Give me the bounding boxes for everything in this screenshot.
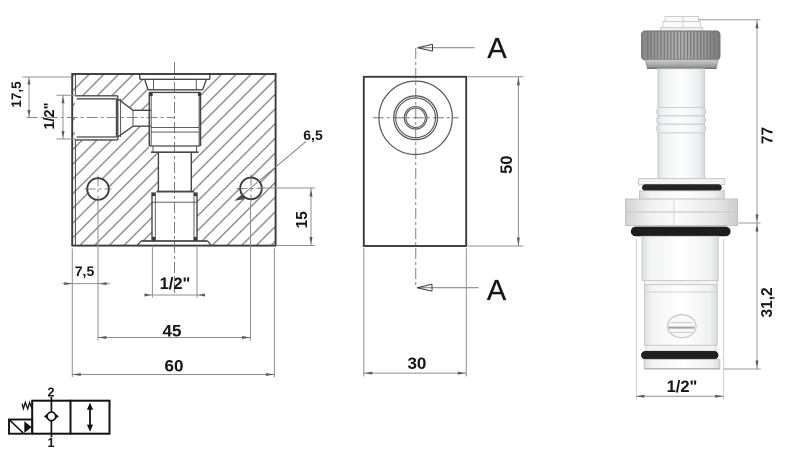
- svg-text:1/2": 1/2": [667, 378, 698, 396]
- svg-text:77: 77: [759, 127, 776, 144]
- svg-text:60: 60: [165, 357, 184, 376]
- svg-text:A: A: [487, 275, 507, 307]
- svg-text:45: 45: [163, 322, 182, 341]
- svg-text:1/2": 1/2": [42, 102, 58, 129]
- svg-text:1: 1: [48, 436, 55, 450]
- svg-text:31,2: 31,2: [759, 287, 776, 317]
- svg-text:2: 2: [48, 386, 55, 400]
- svg-text:17,5: 17,5: [9, 81, 24, 108]
- svg-text:50: 50: [498, 156, 516, 174]
- svg-text:1/2": 1/2": [160, 275, 191, 293]
- svg-text:30: 30: [407, 354, 426, 373]
- svg-text:A: A: [487, 33, 507, 65]
- svg-text:7,5: 7,5: [75, 263, 95, 279]
- svg-text:6,5: 6,5: [303, 127, 323, 143]
- svg-text:15: 15: [294, 211, 311, 229]
